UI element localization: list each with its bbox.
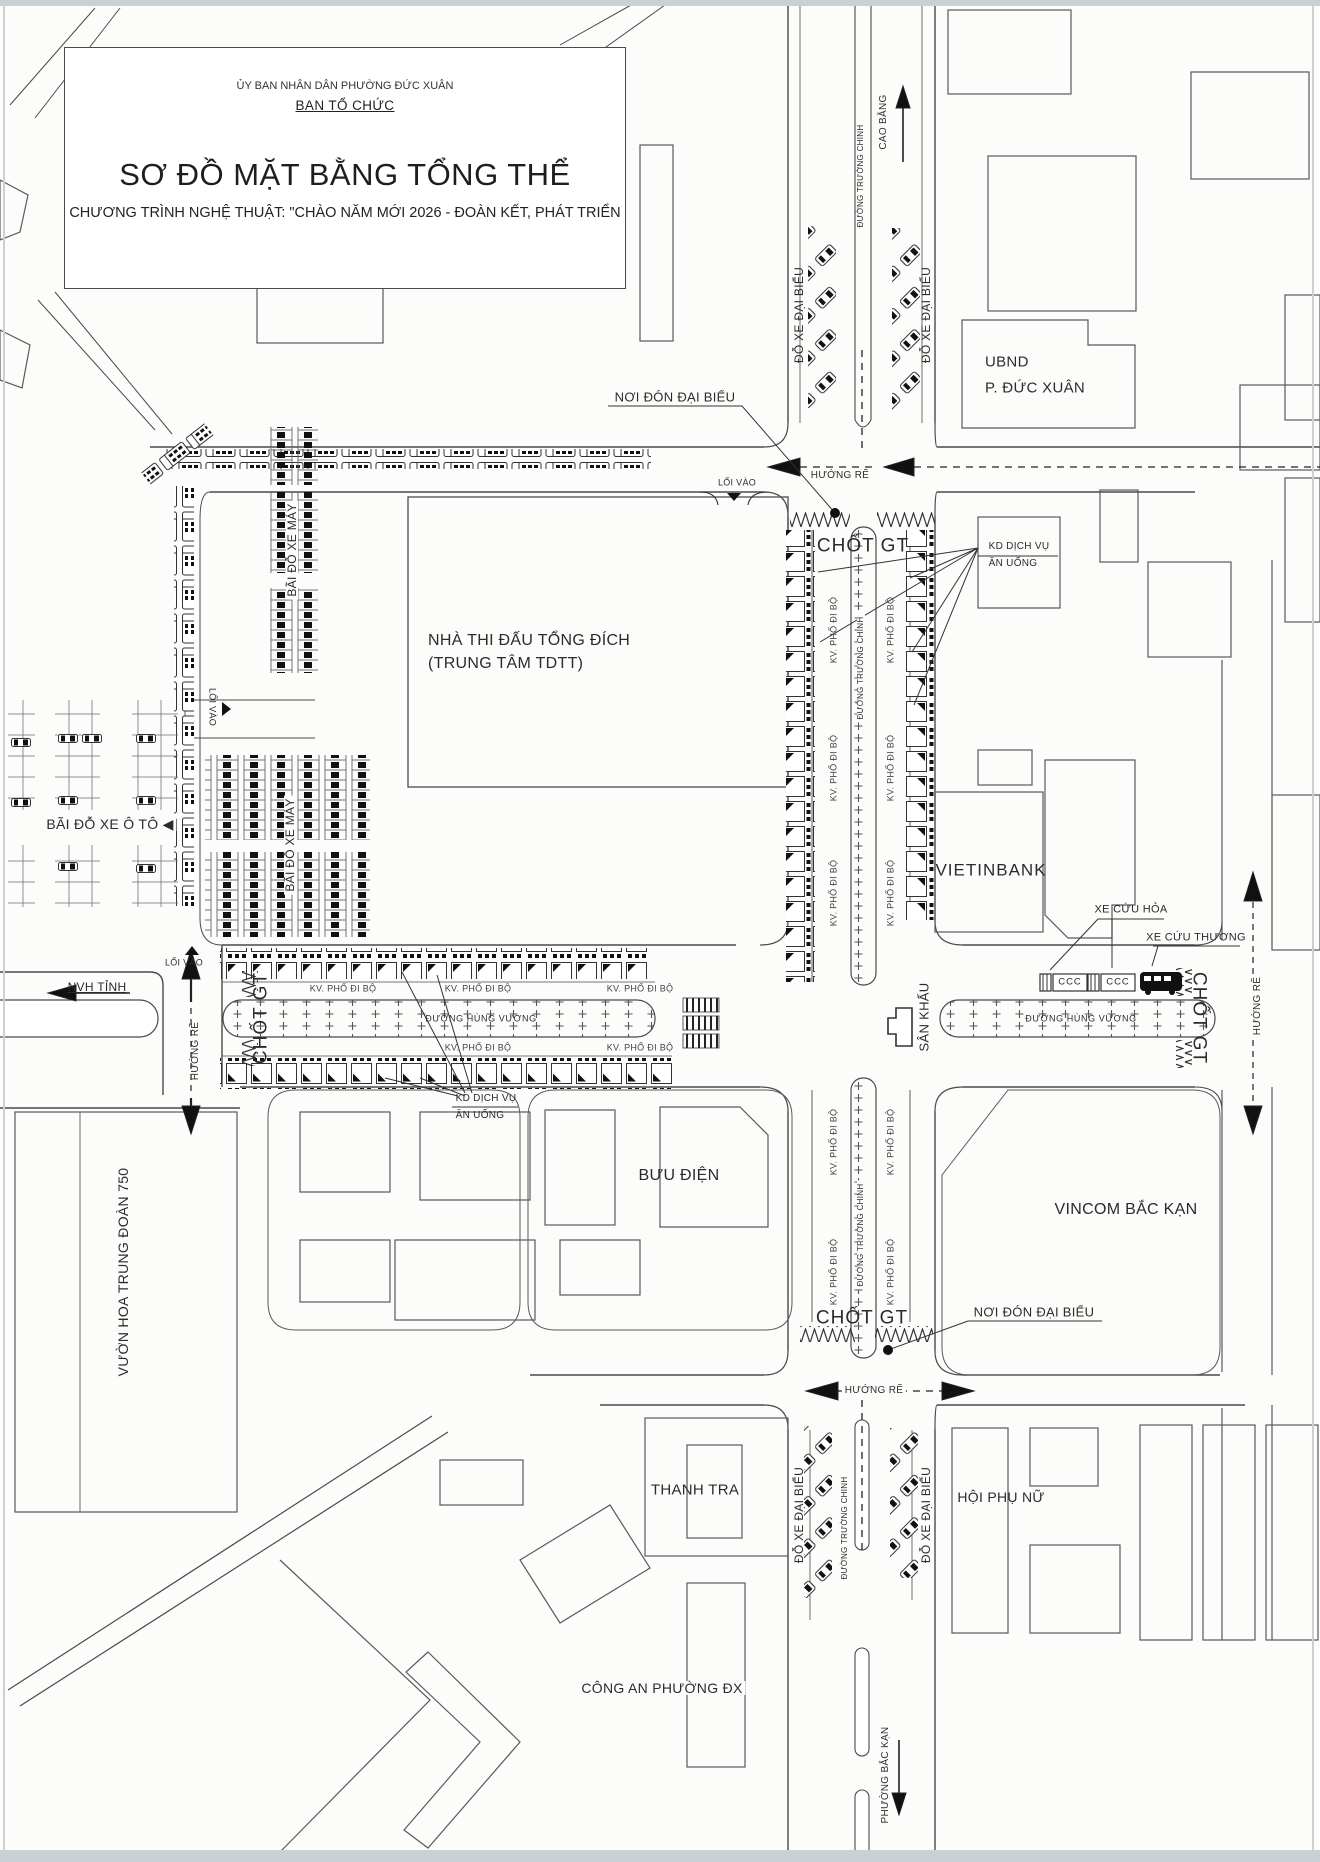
street-label-truong-chinh: ĐƯỜNG TRƯỜNG CHINH: [857, 614, 865, 723]
delegate-parking-icon: [808, 226, 836, 408]
site-plan-map: ỦY BAN NHÂN DÂN PHƯỜNG ĐỨC XUÂN BAN TỔ C…: [0, 0, 1320, 1862]
organization-line: ỦY BAN NHÂN DÂN PHƯỜNG ĐỨC XUÂN: [65, 80, 625, 92]
pedestrian-zone-label: KV. PHỐ ĐI BỘ: [830, 597, 839, 664]
building-label-vincom: VINCOM BẮC KẠN: [1055, 1202, 1198, 1218]
pedestrian-zone-label: KV. PHỐ ĐI BỘ: [887, 735, 896, 802]
building-label-ubnd: UBND: [985, 355, 1029, 370]
pedestrian-zone-label: KV. PHỐ ĐI BỘ: [887, 597, 896, 664]
checkpoint-label: CHỐT GT: [816, 1309, 908, 1328]
building-label-thanh-tra: THANH TRA: [651, 1483, 739, 1498]
pedestrian-zone-label: KV. PHỐ ĐI BỘ: [887, 1239, 896, 1306]
building-label-post-office: BƯU ĐIỆN: [639, 1168, 720, 1184]
car-parking-grid: [8, 700, 35, 810]
annotation-turn-direction: HƯỚNG RẼ: [811, 471, 869, 481]
map-subtitle: CHƯƠNG TRÌNH NGHỆ THUẬT: "CHÀO NĂM MỚI 2…: [65, 205, 625, 221]
page-edge: [0, 1850, 1320, 1862]
page-edge: [1312, 0, 1314, 1862]
building-label-sports-hall: (TRUNG TÂM TDTT): [428, 656, 583, 672]
annotation-delegate-pickup: NƠI ĐÓN ĐẠI BIỂU: [974, 1306, 1095, 1319]
page-edge: [3, 0, 5, 1862]
annotation-turn-direction: HƯỚNG RẼ: [191, 1022, 201, 1080]
stage-icon: [888, 1008, 912, 1046]
parking-label-delegates: ĐỖ XE ĐẠI BIỂU: [793, 1467, 805, 1563]
annotation-delegate-pickup: NƠI ĐÓN ĐẠI BIỂU: [615, 391, 736, 404]
map-title: SƠ ĐỒ MẶT BẰNG TỔNG THỂ: [65, 157, 625, 193]
food-service-label: ĂN UỐNG: [456, 1111, 505, 1121]
annotation-entry: LỐI VÀO: [208, 688, 217, 726]
street-label-hung-vuong: ĐƯỜNG HÙNG VƯƠNG: [1025, 1015, 1136, 1024]
pedestrian-zone-label: KV. PHỐ ĐI BỘ: [607, 985, 674, 994]
pickup-point-marker: [830, 508, 840, 518]
bus-row-icon: [165, 449, 651, 469]
street-label-hung-vuong: ĐƯỜNG HÙNG VƯƠNG: [425, 1015, 536, 1024]
parking-label-delegates: ĐỖ XE ĐẠI BIỂU: [920, 267, 932, 363]
pedestrian-zone-label: KV. PHỐ ĐI BỘ: [830, 1239, 839, 1306]
parking-label-delegates: ĐỖ XE ĐẠI BIỂU: [793, 267, 805, 363]
street-label-truong-chinh: ĐƯỜNG TRƯỜNG CHINH: [857, 1181, 865, 1290]
pedestrian-zone-label: KV. PHỐ ĐI BỘ: [830, 1109, 839, 1176]
checkpoint-label: CHỐT GT: [1190, 972, 1209, 1064]
street-label-cao-bang: CAO BẰNG: [879, 94, 889, 149]
pedestrian-zone-label: KV. PHỐ ĐI BỘ: [830, 860, 839, 927]
building-label-cong-an: CÔNG AN PHƯỜNG ĐX: [578, 1681, 745, 1695]
stage-label: SÂN KHẤU: [918, 983, 931, 1052]
motorbike-parking-icon: [266, 427, 318, 485]
food-service-label: KD DỊCH VỤ: [989, 542, 1050, 552]
pedestrian-zone-label: KV. PHỐ ĐI BỘ: [887, 860, 896, 927]
arrow-down-icon: [892, 1793, 906, 1815]
committee-line: BAN TỔ CHỨC: [65, 98, 625, 113]
fire-truck-code: CCC: [1106, 977, 1130, 987]
parking-label-motorbike: BÃI ĐỖ XE MÁY: [284, 795, 296, 894]
entry-triangle-icon: [185, 946, 199, 955]
annotation-turn-direction: HƯỚNG RẼ: [842, 1386, 906, 1396]
building-label-ubnd: P. ĐỨC XUÂN: [985, 381, 1085, 396]
parking-label-car: BÃI ĐỖ XE Ô TÔ ◀: [43, 817, 176, 831]
annotation-entry: LỐI VÀO: [718, 479, 756, 488]
pedestrian-zone-label: KV. PHỐ ĐI BỘ: [310, 985, 377, 994]
checkpoint-label: CHỐT GT: [252, 972, 271, 1064]
parking-label-motorbike: BÃI ĐỖ XE MÁY: [286, 500, 298, 599]
ambulance-icon: [1140, 972, 1182, 995]
pedestrian-zone-label: KV. PHỐ ĐI BỘ: [445, 1044, 512, 1053]
building-label-sports-hall: NHÀ THI ĐẤU TỔNG ĐÍCH: [428, 633, 630, 649]
food-service-label: ĂN UỐNG: [989, 559, 1038, 569]
annotation-fire-truck: XE CỨU HỎA: [1095, 905, 1168, 916]
building-label-vietinbank: VIETINBANK: [935, 862, 1046, 879]
pedestrian-zone-label: KV. PHỐ ĐI BỘ: [830, 735, 839, 802]
checkpoint-label: CHỐT GT: [817, 537, 909, 556]
annotation-turn-direction: HƯỚNG RẼ: [1253, 977, 1263, 1035]
stall-icon-row: [220, 948, 650, 979]
pedestrian-zone-label: KV. PHỐ ĐI BỘ: [887, 1109, 896, 1176]
fire-truck-code: CCC: [1058, 977, 1082, 987]
street-label-truong-chinh: ĐƯỜNG TRƯỜNG CHINH: [841, 1477, 849, 1580]
pedestrian-zone-label: KV. PHỐ ĐI BỘ: [607, 1044, 674, 1053]
arrow-up-icon: [896, 86, 910, 108]
street-label-phuong-bac-kan: PHƯỜNG BẮC KẠN: [881, 1727, 891, 1824]
annotation-nvh-tinh: NVH TỈNH: [68, 981, 127, 993]
parking-label-delegates: ĐỖ XE ĐẠI BIỂU: [920, 1467, 932, 1563]
street-label-truong-chinh: ĐƯỜNG TRƯỜNG CHINH: [857, 125, 865, 228]
bus-column-icon: [174, 486, 194, 906]
checkpoint-barriers: [242, 512, 1192, 1342]
building-label-hoi-phu-nu: HỘI PHỤ NỮ: [957, 1490, 1044, 1504]
food-service-label: KD DỊCH VỤ: [456, 1094, 517, 1104]
park-label-vuon-hoa: VƯỜN HOA TRUNG ĐOÀN 750: [116, 1168, 130, 1377]
annotation-entry: LỐI VÀO: [165, 959, 203, 968]
pedestrian-zone-label: KV. PHỐ ĐI BỘ: [445, 985, 512, 994]
entry-triangle-icon: [222, 702, 231, 716]
title-block: ỦY BAN NHÂN DÂN PHƯỜNG ĐỨC XUÂN BAN TỔ C…: [64, 47, 626, 289]
car-icon: [12, 739, 31, 747]
annotation-ambulance: XE CỨU THƯƠNG: [1146, 933, 1246, 944]
arrow-right-icon: [884, 458, 914, 476]
parking-areas: [8, 226, 920, 1598]
barrier-zigzag-icon: [790, 512, 850, 528]
page-edge: [0, 0, 1320, 6]
